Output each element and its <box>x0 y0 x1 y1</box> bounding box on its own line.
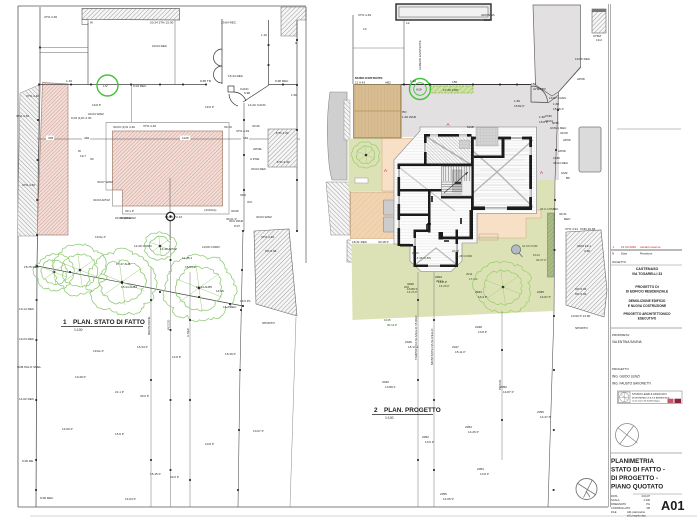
svg-text:20.04: 20.04 <box>484 18 492 22</box>
svg-text:VALENTINA SAVINA: VALENTINA SAVINA <box>612 340 643 344</box>
svg-text:335: 335 <box>48 136 53 140</box>
svg-text:A01: A01 <box>661 498 684 513</box>
svg-text:SPORTO: SPORTO <box>262 321 276 325</box>
svg-text:15.8 P: 15.8 P <box>539 120 548 124</box>
svg-text:20.04 WAR: 20.04 WAR <box>88 112 104 116</box>
svg-text:8% 5.36: 8% 5.36 <box>575 292 587 296</box>
svg-text:37% 4.30: 37% 4.30 <box>44 15 57 19</box>
svg-text:1.60 WAR: 1.60 WAR <box>402 115 417 119</box>
svg-text:UNS.1 REC: UNS.1 REC <box>550 126 567 130</box>
svg-text:13.8 P: 13.8 P <box>480 472 489 476</box>
svg-text:INGEGNERIA CIVILE E AMBIENTALE: INGEGNERIA CIVILE E AMBIENTALE <box>632 396 670 399</box>
svg-text:A POE: A POE <box>250 157 259 161</box>
svg-text:BF: BF <box>566 176 570 180</box>
svg-text:N: N <box>612 252 614 256</box>
svg-text:2052: 2052 <box>422 435 429 439</box>
svg-text:STATO DI FATTO -: STATO DI FATTO - <box>611 467 665 474</box>
svg-text:16.04 P: 16.04 P <box>185 265 196 269</box>
svg-text:17.0m: 17.0m <box>469 277 478 281</box>
svg-text:A: A <box>540 170 543 175</box>
svg-text:16.7 REC: 16.7 REC <box>223 305 237 309</box>
svg-text:37% 4.30: 37% 4.30 <box>16 114 29 118</box>
svg-text:17.39 COP: 17.39 COP <box>443 88 458 92</box>
svg-text:3040: 3040 <box>382 380 389 384</box>
svg-text:30.0: 30.0 <box>240 193 246 197</box>
svg-text:150: 150 <box>531 82 536 86</box>
svg-text:19.0 P: 19.0 P <box>205 105 214 109</box>
svg-text:30.31: 30.31 <box>559 212 567 216</box>
svg-text:1.10: 1.10 <box>261 33 267 37</box>
svg-text:10: 10 <box>363 27 367 31</box>
svg-text:VIA TOSARELLI 33: VIA TOSARELLI 33 <box>632 272 662 276</box>
svg-text:ALBERO ESISTENTE: ALBERO ESISTENTE <box>418 40 422 70</box>
svg-text:20.04 REC: 20.04 REC <box>152 44 168 48</box>
svg-text:14.46 ALBS: 14.46 ALBS <box>415 256 431 260</box>
svg-text:21.1 P: 21.1 P <box>115 390 124 394</box>
svg-text:ING. FAUSTO SAVORETTI: ING. FAUSTO SAVORETTI <box>612 382 651 386</box>
svg-text:16.0 P1: 16.0 P1 <box>240 299 251 303</box>
svg-text:APOE: APOE <box>253 147 262 151</box>
svg-text:RECINZIONE: RECINZIONE <box>147 316 151 335</box>
svg-text:E NUOVA COSTRUZIONE: E NUOVA COSTRUZIONE <box>628 304 666 308</box>
svg-text:37% 4.30: 37% 4.30 <box>22 183 35 187</box>
svg-text:30.0 P: 30.0 P <box>140 394 149 398</box>
svg-text:Revisione: Revisione <box>640 252 653 256</box>
svg-text:A.SEC: A.SEC <box>186 327 190 337</box>
svg-text:30.03 WAR: 30.03 WAR <box>256 215 272 219</box>
svg-text:A19: A19 <box>416 88 422 92</box>
svg-text:2056: 2056 <box>537 410 544 414</box>
svg-text:DISEGNATO: DISEGNATO <box>611 502 626 506</box>
svg-text:13.0 P: 13.0 P <box>425 440 434 444</box>
svg-text:17.47 ALB: 17.47 ALB <box>116 262 130 266</box>
svg-text:1.60: 1.60 <box>553 102 559 106</box>
svg-text:SCB PALO SNEL: SCB PALO SNEL <box>17 365 41 369</box>
svg-text:19.7: 19.7 <box>80 154 86 158</box>
svg-text:a01 progetto.dwg: a01 progetto.dwg <box>627 515 646 518</box>
svg-text:2018: 2018 <box>452 249 459 253</box>
svg-text:30: 30 <box>90 157 94 161</box>
svg-text:11 0.43: 11 0.43 <box>355 81 365 85</box>
svg-text:2055: 2055 <box>440 492 447 496</box>
svg-text:CM2: CM2 <box>561 171 568 175</box>
svg-text:FILE: FILE <box>611 510 617 514</box>
svg-text:STUDIO LENZI & ASSOCIATI: STUDIO LENZI & ASSOCIATI <box>632 392 667 396</box>
svg-text:15.44 ALB4: 15.44 ALB4 <box>121 285 137 289</box>
svg-text:1:100: 1:100 <box>74 328 83 332</box>
svg-text:2050: 2050 <box>500 385 507 389</box>
svg-text:14.87 P: 14.87 P <box>503 390 514 394</box>
svg-text:9% 5.36: 9% 5.36 <box>575 287 587 291</box>
svg-text:19.49 P: 19.49 P <box>75 375 86 379</box>
svg-text:14.60 P: 14.60 P <box>62 427 73 431</box>
svg-text:MAB: MAB <box>467 125 474 129</box>
svg-text:37% 4.30: 37% 4.30 <box>276 160 289 164</box>
svg-text:15.8k P: 15.8k P <box>514 104 525 108</box>
svg-text:DEMOLIZIONE EDIFICIO: DEMOLIZIONE EDIFICIO <box>629 299 666 303</box>
svg-text:14.26 P: 14.26 P <box>468 430 479 434</box>
svg-text:37% 4.30: 37% 4.30 <box>275 131 288 135</box>
svg-text:12: 12 <box>406 21 410 25</box>
svg-text:37% 4.40: 37% 4.40 <box>143 124 156 128</box>
svg-text:1014: 1014 <box>533 253 540 257</box>
svg-text:1.60: 1.60 <box>514 99 520 103</box>
svg-text:2053: 2053 <box>465 425 472 429</box>
svg-text:14.03 P: 14.03 P <box>125 497 136 501</box>
svg-text:14.07 P: 14.07 P <box>540 295 551 299</box>
svg-text:CONTROLLATO: CONTROLLATO <box>611 506 630 510</box>
svg-text:30.0F: 30.0F <box>231 209 239 213</box>
svg-text:9: 9 <box>295 41 297 45</box>
svg-text:SPORTO: SPORTO <box>575 326 589 330</box>
svg-text:DI PROGETTO -: DI PROGETTO - <box>611 475 658 482</box>
svg-text:GHETTR: GHETTR <box>533 87 546 91</box>
svg-text:2.13: 2.13 <box>176 215 182 219</box>
svg-text:PG: PG <box>646 502 650 506</box>
svg-text:2044: 2044 <box>475 290 482 294</box>
svg-text:15.15 P: 15.15 P <box>150 472 161 476</box>
svg-text:13.67 CANC: 13.67 CANC <box>549 96 567 100</box>
svg-text:ESECUTIVO: ESECUTIVO <box>638 317 657 321</box>
svg-text:13.07 P: 13.07 P <box>253 429 264 433</box>
svg-text:30.18 P: 30.18 P <box>378 240 389 244</box>
svg-text:30.2F: 30.2F <box>252 124 260 128</box>
svg-text:21.03.2020: 21.03.2020 <box>621 245 636 249</box>
svg-text:A01 planimetrie: A01 planimetrie <box>627 510 646 514</box>
svg-text:GRONDA: GRONDA <box>481 13 496 17</box>
svg-text:PLANIMETRIA: PLANIMETRIA <box>611 458 654 465</box>
svg-text:19.44 ALB5: 19.44 ALB5 <box>196 285 212 289</box>
svg-text:-: - <box>647 293 648 297</box>
svg-text:15.48 CORD: 15.48 CORD <box>455 254 473 258</box>
svg-text:2048: 2048 <box>475 325 482 329</box>
svg-text:20.03 WAR: 20.03 WAR <box>115 216 131 220</box>
svg-text:14.48 APOZ: 14.48 APOZ <box>160 247 177 251</box>
svg-text:(JUUUA): (JUUUA) <box>204 208 216 212</box>
svg-text:MONTANTE DA SLIVELLO: MONTANTE DA SLIVELLO <box>430 328 434 365</box>
svg-text:2046: 2046 <box>405 340 412 344</box>
svg-text:19.84 REC: 19.84 REC <box>221 21 237 25</box>
svg-text:PROPRIETA': PROPRIETA' <box>612 333 630 337</box>
svg-text:15.49 P: 15.49 P <box>225 352 236 356</box>
svg-text:30.03 (1)% 4.40: 30.03 (1)% 4.40 <box>113 125 135 129</box>
svg-text:13.89 F: 13.89 F <box>385 385 396 389</box>
svg-text:19.2: 19.2 <box>596 38 602 42</box>
svg-text:2054: 2054 <box>477 467 484 471</box>
svg-text:19.8 P: 19.8 P <box>92 103 101 107</box>
svg-text:1.60: 1.60 <box>539 115 545 119</box>
svg-text:AP06: AP06 <box>563 138 571 142</box>
svg-text:10.8 P: 10.8 P <box>205 442 214 446</box>
svg-text:2045: 2045 <box>537 290 544 294</box>
svg-text:TAMPON. DA SLIVELLO 15 REC: TAMPON. DA SLIVELLO 15 REC <box>414 315 418 360</box>
svg-text:30.04 REC: 30.04 REC <box>553 161 569 165</box>
svg-text:14.02 REC: 14.02 REC <box>19 397 35 401</box>
svg-text:30.07 WAR: 30.07 WAR <box>97 180 113 184</box>
svg-text:2004: 2004 <box>435 275 442 279</box>
svg-text:MURO ESISTENTE: MURO ESISTENTE <box>355 76 383 80</box>
svg-text:9.06 RE: 9.06 RE <box>22 459 33 463</box>
svg-text:1.60: 1.60 <box>291 93 297 97</box>
svg-text:DATA: DATA <box>611 494 618 498</box>
svg-text:2047: 2047 <box>452 345 459 349</box>
svg-text:14.AV CANC: 14.AV CANC <box>248 103 267 107</box>
svg-text:15.11 P: 15.11 P <box>455 350 465 354</box>
svg-text:30.1k P: 30.1k P <box>387 323 397 327</box>
svg-text:13.4 P: 13.4 P <box>478 295 487 299</box>
svg-text:30.19: 30.19 <box>224 125 232 129</box>
svg-text:37% 4.40: 37% 4.40 <box>261 235 274 239</box>
svg-text:W: W <box>78 149 81 153</box>
svg-text:2: 2 <box>374 407 378 414</box>
svg-text:32.0 P: 32.0 P <box>170 475 179 479</box>
svg-text:19.90 P 13.90: 19.90 P 13.90 <box>571 314 590 318</box>
svg-text:3.90: 3.90 <box>584 249 590 253</box>
svg-text:13.26 P: 13.26 P <box>439 284 449 288</box>
svg-text:37% 4.49: 37% 4.49 <box>236 129 249 133</box>
svg-text:9.03 (1)% 4.30: 9.03 (1)% 4.30 <box>71 116 92 120</box>
svg-text:4.04.07: 4.04.07 <box>641 494 650 498</box>
svg-text:14.45: 14.45 <box>216 289 224 293</box>
svg-text:30.21 P: 30.21 P <box>226 217 237 221</box>
svg-text:SCALA: SCALA <box>611 498 620 502</box>
svg-text:9.98 REC: 9.98 REC <box>275 79 289 83</box>
svg-text:14.8 P: 14.8 P <box>438 280 447 284</box>
svg-text:PROGETTO ARCHITETTONICO: PROGETTO ARCHITETTONICO <box>623 312 671 316</box>
svg-text:AP08: AP08 <box>577 77 585 81</box>
svg-text:30.03 APOZ: 30.03 APOZ <box>93 198 110 202</box>
svg-text:AP08: AP08 <box>558 149 566 153</box>
svg-text:19.05 REC: 19.05 REC <box>575 57 591 61</box>
svg-text:15.0 P: 15.0 P <box>115 432 124 436</box>
svg-text:14.47 P: 14.47 P <box>540 415 551 419</box>
svg-text:2013: 2013 <box>412 251 419 255</box>
svg-text:A: A <box>447 122 450 127</box>
svg-text:30.09: 30.09 <box>560 131 568 135</box>
svg-text:CND: CND <box>545 114 552 118</box>
svg-text:14.8 P: 14.8 P <box>172 355 181 359</box>
svg-text:31F: 31F <box>553 207 558 211</box>
svg-text:OGGETTO: OGGETTO <box>612 260 627 264</box>
svg-text:PIANO QUOTATO: PIANO QUOTATO <box>611 484 663 491</box>
svg-text:30.04 REC: 30.04 REC <box>251 167 267 171</box>
svg-text:13.89 F: 13.89 F <box>407 287 418 291</box>
svg-text:PROGETTO DI: PROGETTO DI <box>635 285 658 289</box>
svg-text:9.03 REC: 9.03 REC <box>133 84 147 88</box>
svg-text:1128: 1128 <box>182 136 189 140</box>
svg-text:30.1 P: 30.1 P <box>125 209 134 213</box>
svg-text:1046: 1046 <box>553 156 560 160</box>
svg-text:1.10: 1.10 <box>410 79 416 83</box>
svg-text:11.78.1: 11.78.1 <box>182 256 192 260</box>
svg-text:14.65 P: 14.65 P <box>443 497 454 501</box>
svg-text:15.17 F: 15.17 F <box>408 345 419 349</box>
svg-text:13.8 P: 13.8 P <box>478 330 487 334</box>
svg-text:1:100: 1:100 <box>385 416 394 420</box>
svg-text:POZZO: POZZO <box>167 319 171 330</box>
svg-text:3040: 3040 <box>407 282 414 286</box>
svg-text:W: W <box>90 21 93 25</box>
svg-text:1.34: 1.34 <box>66 79 72 83</box>
svg-text:15.34 P: 15.34 P <box>137 345 148 349</box>
svg-text:PLAN. STATO DI FATTO: PLAN. STATO DI FATTO <box>73 319 145 326</box>
svg-text:150: 150 <box>452 80 457 84</box>
svg-text:REC: REC <box>564 217 571 221</box>
svg-text:19.06 CORD: 19.06 CORD <box>202 245 220 249</box>
svg-text:8.07: 8.07 <box>234 224 240 228</box>
svg-text:19.24 REC: 19.24 REC <box>19 337 35 341</box>
svg-text:482: 482 <box>84 136 89 140</box>
svg-text:ICC: ICC <box>247 200 253 204</box>
svg-text:37% 4.40: 37% 4.40 <box>26 94 39 98</box>
svg-text:26.0 COM: 26.0 COM <box>540 207 554 211</box>
svg-text:2011: 2011 <box>466 272 473 276</box>
svg-text:1015: 1015 <box>384 318 391 322</box>
svg-text:15.44 REC: 15.44 REC <box>228 74 244 78</box>
svg-text:ING. GUIDO LENZI: ING. GUIDO LENZI <box>612 375 640 379</box>
svg-text:20.34 37% 15.00: 20.34 37% 15.00 <box>150 21 174 25</box>
svg-text:19.0e P: 19.0e P <box>93 349 104 353</box>
svg-text:86.04 P: 86.04 P <box>165 215 176 219</box>
svg-text:19.14 REC: 19.14 REC <box>19 307 35 311</box>
svg-text:37% 4.49: 37% 4.49 <box>358 13 371 17</box>
svg-text:A: A <box>384 168 387 173</box>
svg-text:CND 19.96: CND 19.96 <box>580 227 596 231</box>
svg-text:9% 5.36: 9% 5.36 <box>265 249 277 253</box>
svg-text:9.98: 9.98 <box>244 91 250 95</box>
svg-text:Data: Data <box>621 252 627 256</box>
svg-text:1:100: 1:100 <box>644 498 651 502</box>
svg-text:FB: FB <box>647 506 651 510</box>
svg-text:PROGETTO: PROGETTO <box>612 367 629 371</box>
svg-text:HD: HD <box>402 110 407 114</box>
svg-text:18.31 REC: 18.31 REC <box>352 240 368 244</box>
svg-text:CASTENASO: CASTENASO <box>636 267 659 271</box>
svg-text:14.40 CORD: 14.40 CORD <box>134 244 152 248</box>
svg-text:GRO 19.1: GRO 19.1 <box>577 244 591 248</box>
svg-text:37% 4.91: 37% 4.91 <box>565 227 578 231</box>
svg-text:varianti esterne: varianti esterne <box>640 245 661 249</box>
svg-text:PLAN. PROGETTO: PLAN. PROGETTO <box>384 407 441 414</box>
svg-text:via de mattei 33 40138 bolog: via de mattei 33 40138 bologna <box>632 399 661 402</box>
svg-text:31.03 COM: 31.03 COM <box>522 244 538 248</box>
svg-text:19.0e P: 19.0e P <box>95 235 106 239</box>
svg-text:AB2: AB2 <box>385 81 391 85</box>
svg-text:30.07 P: 30.07 P <box>536 258 546 262</box>
svg-text:1: 1 <box>63 319 67 326</box>
svg-text:NHB: NHB <box>552 121 559 125</box>
svg-text:9.08 REC: 9.08 REC <box>40 496 54 500</box>
svg-text:9.65 TR: 9.65 TR <box>200 79 212 83</box>
